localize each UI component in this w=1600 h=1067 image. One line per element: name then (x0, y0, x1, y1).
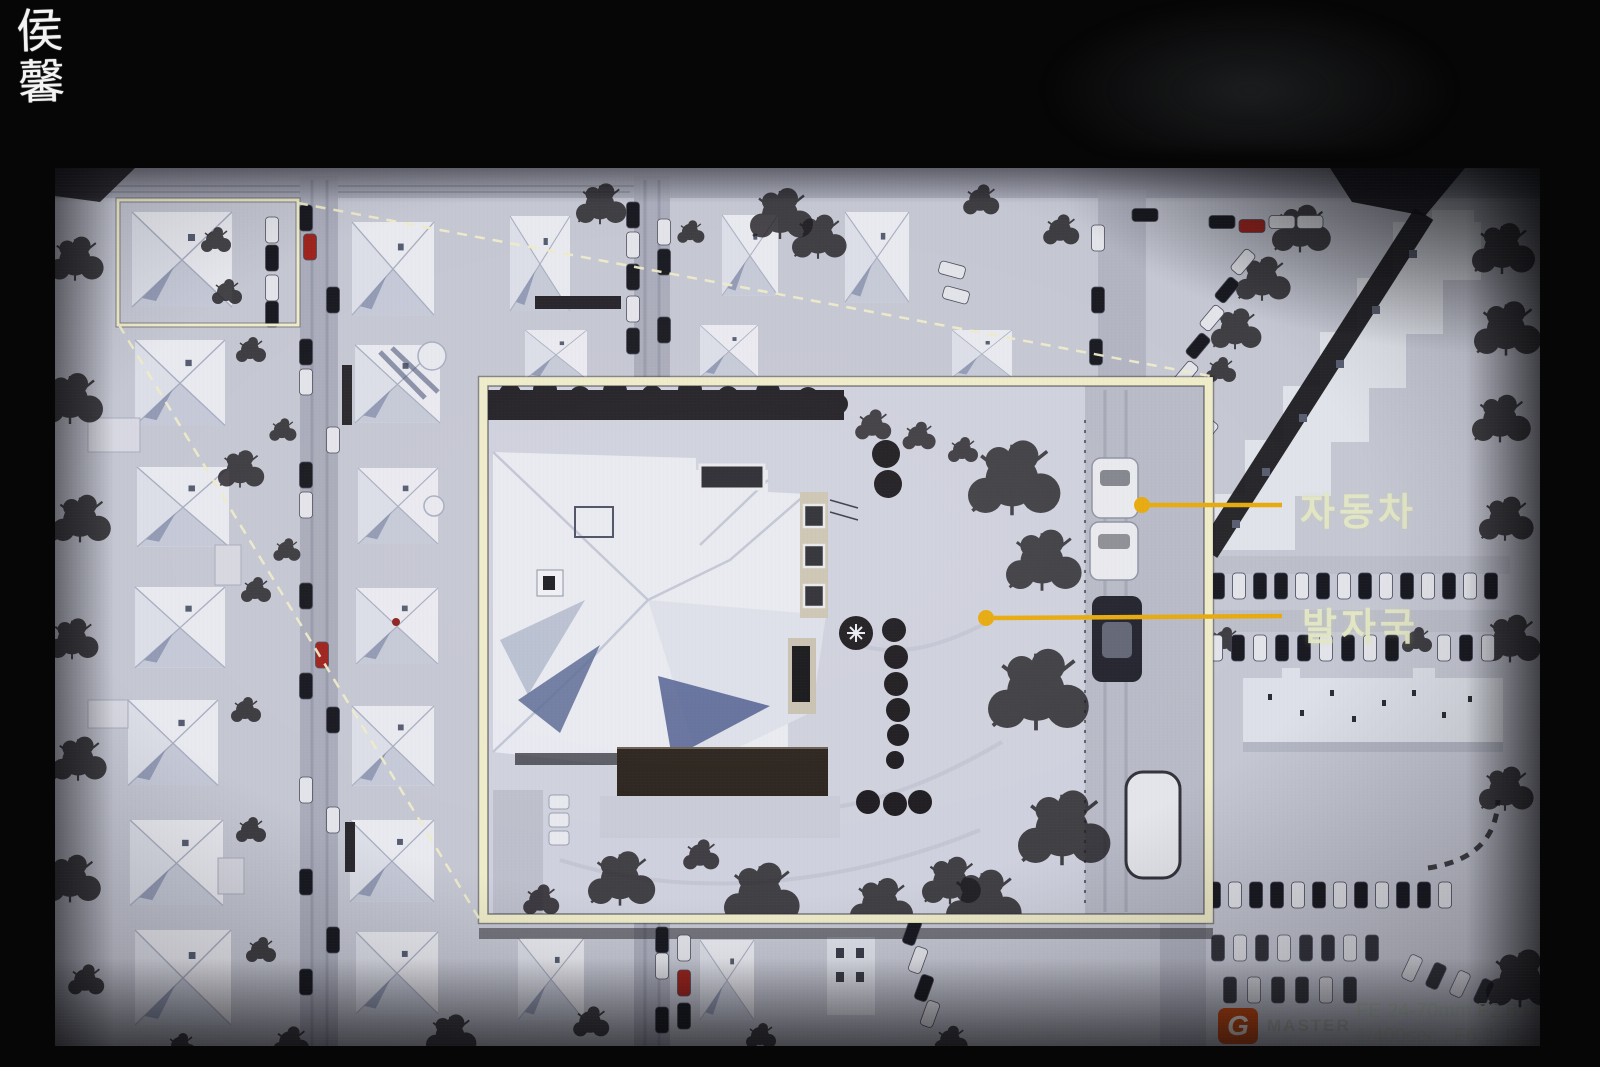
magnifier-inset (479, 377, 1214, 931)
inset-scene (488, 378, 1205, 931)
label-car: 자동차 (1300, 481, 1417, 536)
callout-line-footprints (992, 616, 1282, 618)
screen-glare (1020, 0, 1480, 150)
label-footprints: 발자국 (1302, 596, 1419, 651)
artist-calligraphy-watermark: 侯馨 (10, 5, 60, 109)
exposure-settings-line: 1/400sec., F6.3, ISO 400 (1356, 1025, 1540, 1046)
aerial-photo: 자동차 발자국 G MASTER FE 24-70mm F2.8 GM on α… (55, 168, 1540, 1046)
callout-dot-car (1134, 497, 1150, 513)
g-master-brand: MASTER (1267, 1016, 1351, 1036)
lens-info-line: FE 24-70mm F2.8 GM on α7RII (1356, 1000, 1540, 1023)
camera-watermark: G MASTER FE 24-70mm F2.8 GM on α7RII 1/4… (1215, 1000, 1540, 1046)
callout-dot-footprints (978, 610, 994, 626)
lens-name: FE 24-70mm F2.8 GM on (1356, 1000, 1540, 1022)
photograph-of-screen: 자동차 발자국 G MASTER FE 24-70mm F2.8 GM on α… (0, 0, 1600, 1067)
g-master-logo-icon: G (1218, 1008, 1258, 1044)
